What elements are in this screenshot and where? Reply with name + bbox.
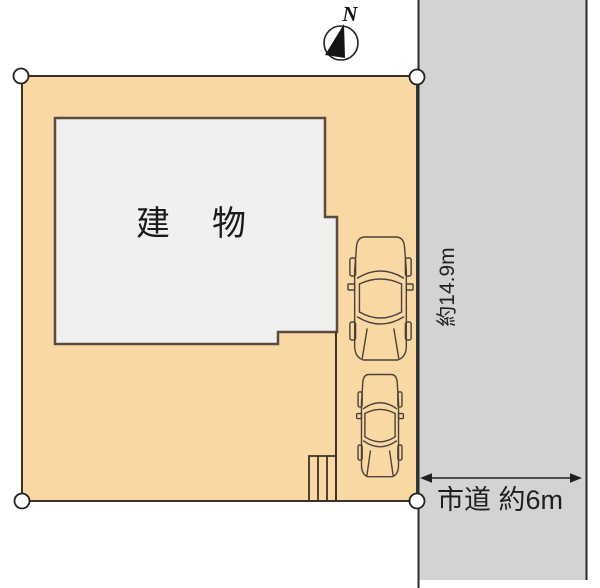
boundary-point-marker <box>15 494 30 509</box>
north-compass-icon: N <box>324 2 358 60</box>
frontage-dimension-label: 約14.9m <box>436 232 458 342</box>
road-name-width-label: 市道 約6m <box>430 486 570 516</box>
building-label: 建 物 <box>128 206 258 243</box>
boundary-point-marker <box>14 69 29 84</box>
boundary-point-marker <box>410 70 425 85</box>
site-plan-canvas: N 建 物 約14.9m 市道 約6m <box>0 0 600 588</box>
compass-north-label: N <box>341 2 358 26</box>
boundary-point-marker <box>410 494 425 509</box>
